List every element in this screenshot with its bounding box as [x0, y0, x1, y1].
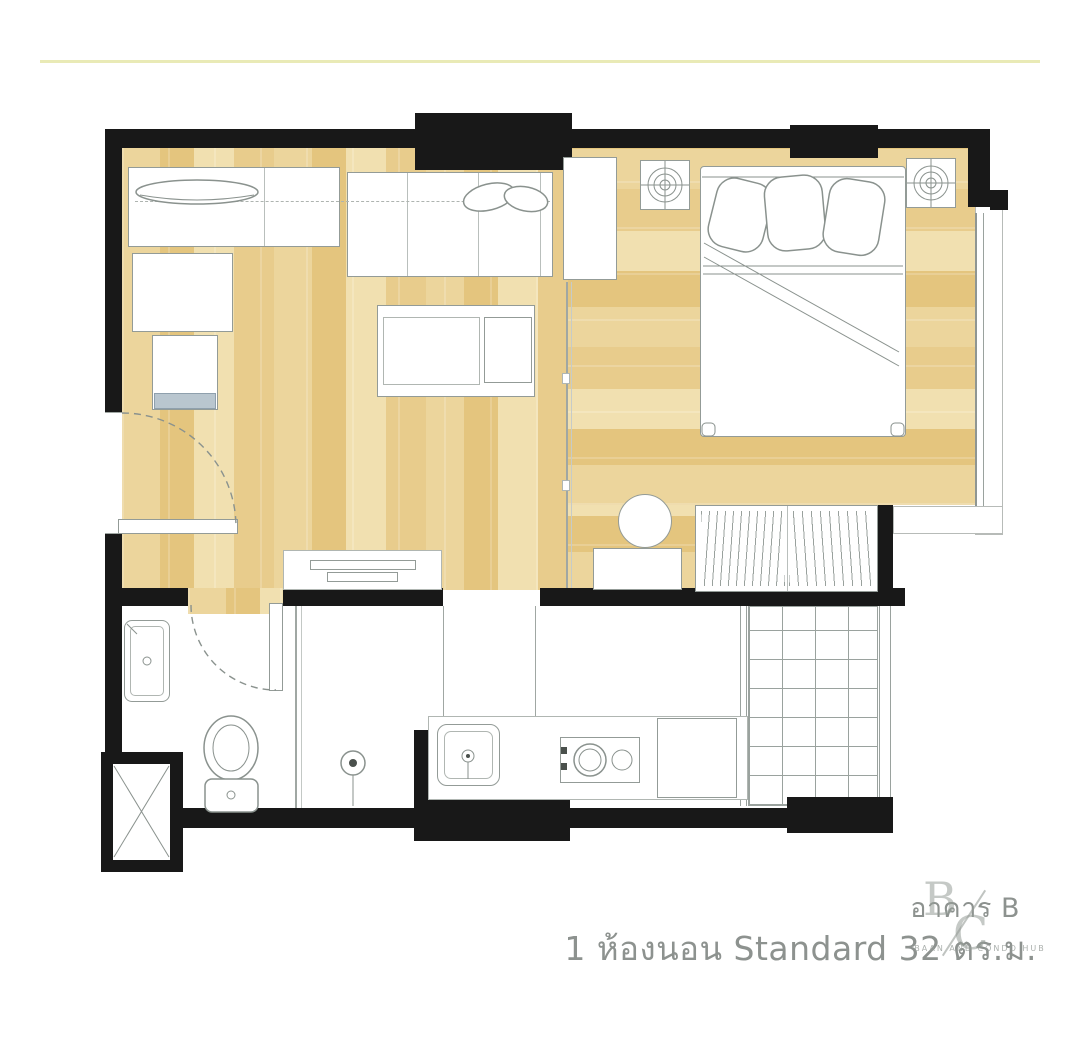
bar-counter-shelf-bottom [327, 572, 398, 582]
sliding-door-track [566, 282, 568, 588]
column-top-right [790, 125, 878, 158]
washbasin-inner [130, 626, 164, 696]
shower-drain-icon [341, 751, 365, 806]
wall-bottom-b [570, 808, 790, 828]
bar-counter-shelf-top [310, 560, 416, 570]
tv-screen [154, 393, 216, 409]
coffee-table-inner [383, 317, 480, 385]
wall-bottom-right-block [787, 797, 893, 833]
watermark-letter-b: B [923, 872, 957, 926]
sofa-cushion-line-1 [407, 173, 408, 276]
bath-shower-partition-2 [301, 606, 302, 808]
wall-bath-top-a [122, 588, 188, 606]
tv-cabinet [132, 253, 233, 332]
kitchen-counter-cabinet [657, 718, 737, 798]
balcony-glass-door [975, 213, 984, 529]
sofa [347, 172, 553, 277]
service-shaft-inner [113, 764, 170, 860]
wall-top-left [105, 129, 416, 148]
bedroom-stool [618, 494, 672, 548]
console-sideboard [128, 167, 340, 247]
console-divider [264, 168, 265, 246]
bathroom-door-swing-arc [191, 605, 276, 690]
sofa-armrest-line [540, 173, 541, 276]
overhead-cabinet-dashed-line [135, 201, 550, 202]
wall-top-right [876, 129, 976, 148]
wardrobe-clothes-right [789, 511, 873, 586]
double-bed [700, 166, 906, 437]
wall-bath-top-b [283, 588, 443, 606]
bath-shower-partition [295, 606, 297, 808]
kitchen-sink-basin [444, 731, 493, 779]
wall-right-mid [876, 505, 893, 605]
kitchen-corridor-line-left [443, 606, 444, 733]
nightstand-left [640, 160, 690, 210]
nightstand-right [906, 158, 956, 208]
toilet-icon [204, 716, 258, 812]
bar-counter [283, 550, 442, 590]
wall-top-mid [570, 129, 792, 148]
drying-grid-right-rail [879, 605, 891, 797]
wardrobe-divider [787, 506, 788, 591]
balcony-corner-ledge [893, 506, 1003, 534]
entry-door-leaf [118, 519, 238, 534]
wall-left-mid [105, 534, 122, 765]
watermark-subtitle: BAAN AND CONDO HUB [905, 944, 1055, 953]
wall-corner-stub [990, 190, 1008, 210]
wall-corner-vertical [968, 129, 990, 207]
wall-bottom-a [168, 808, 430, 828]
wardrobe-clothes-left [701, 511, 785, 586]
bathroom-door-leaf [269, 603, 283, 691]
coffee-table-tray [484, 317, 532, 383]
floorplan-page: { "caption": { "building": "อาคาร B", "u… [0, 0, 1077, 1049]
entry-opening-edge-top [105, 412, 122, 413]
sofa-cushion-line-2 [478, 173, 479, 276]
sliding-door-track-2 [571, 282, 572, 588]
sliding-door-handle-1 [562, 373, 570, 384]
sliding-door-handle-2 [562, 480, 570, 491]
column-top-center [415, 113, 572, 170]
wall-left-upper [105, 129, 122, 412]
kitchen-corridor-line-right [535, 606, 536, 733]
cooktop [560, 737, 640, 783]
watermark: B C BAAN AND CONDO HUB [905, 880, 1055, 975]
partition-cabinet [563, 157, 617, 280]
drying-grid-area [748, 606, 878, 806]
bedroom-low-cabinet [593, 548, 682, 590]
